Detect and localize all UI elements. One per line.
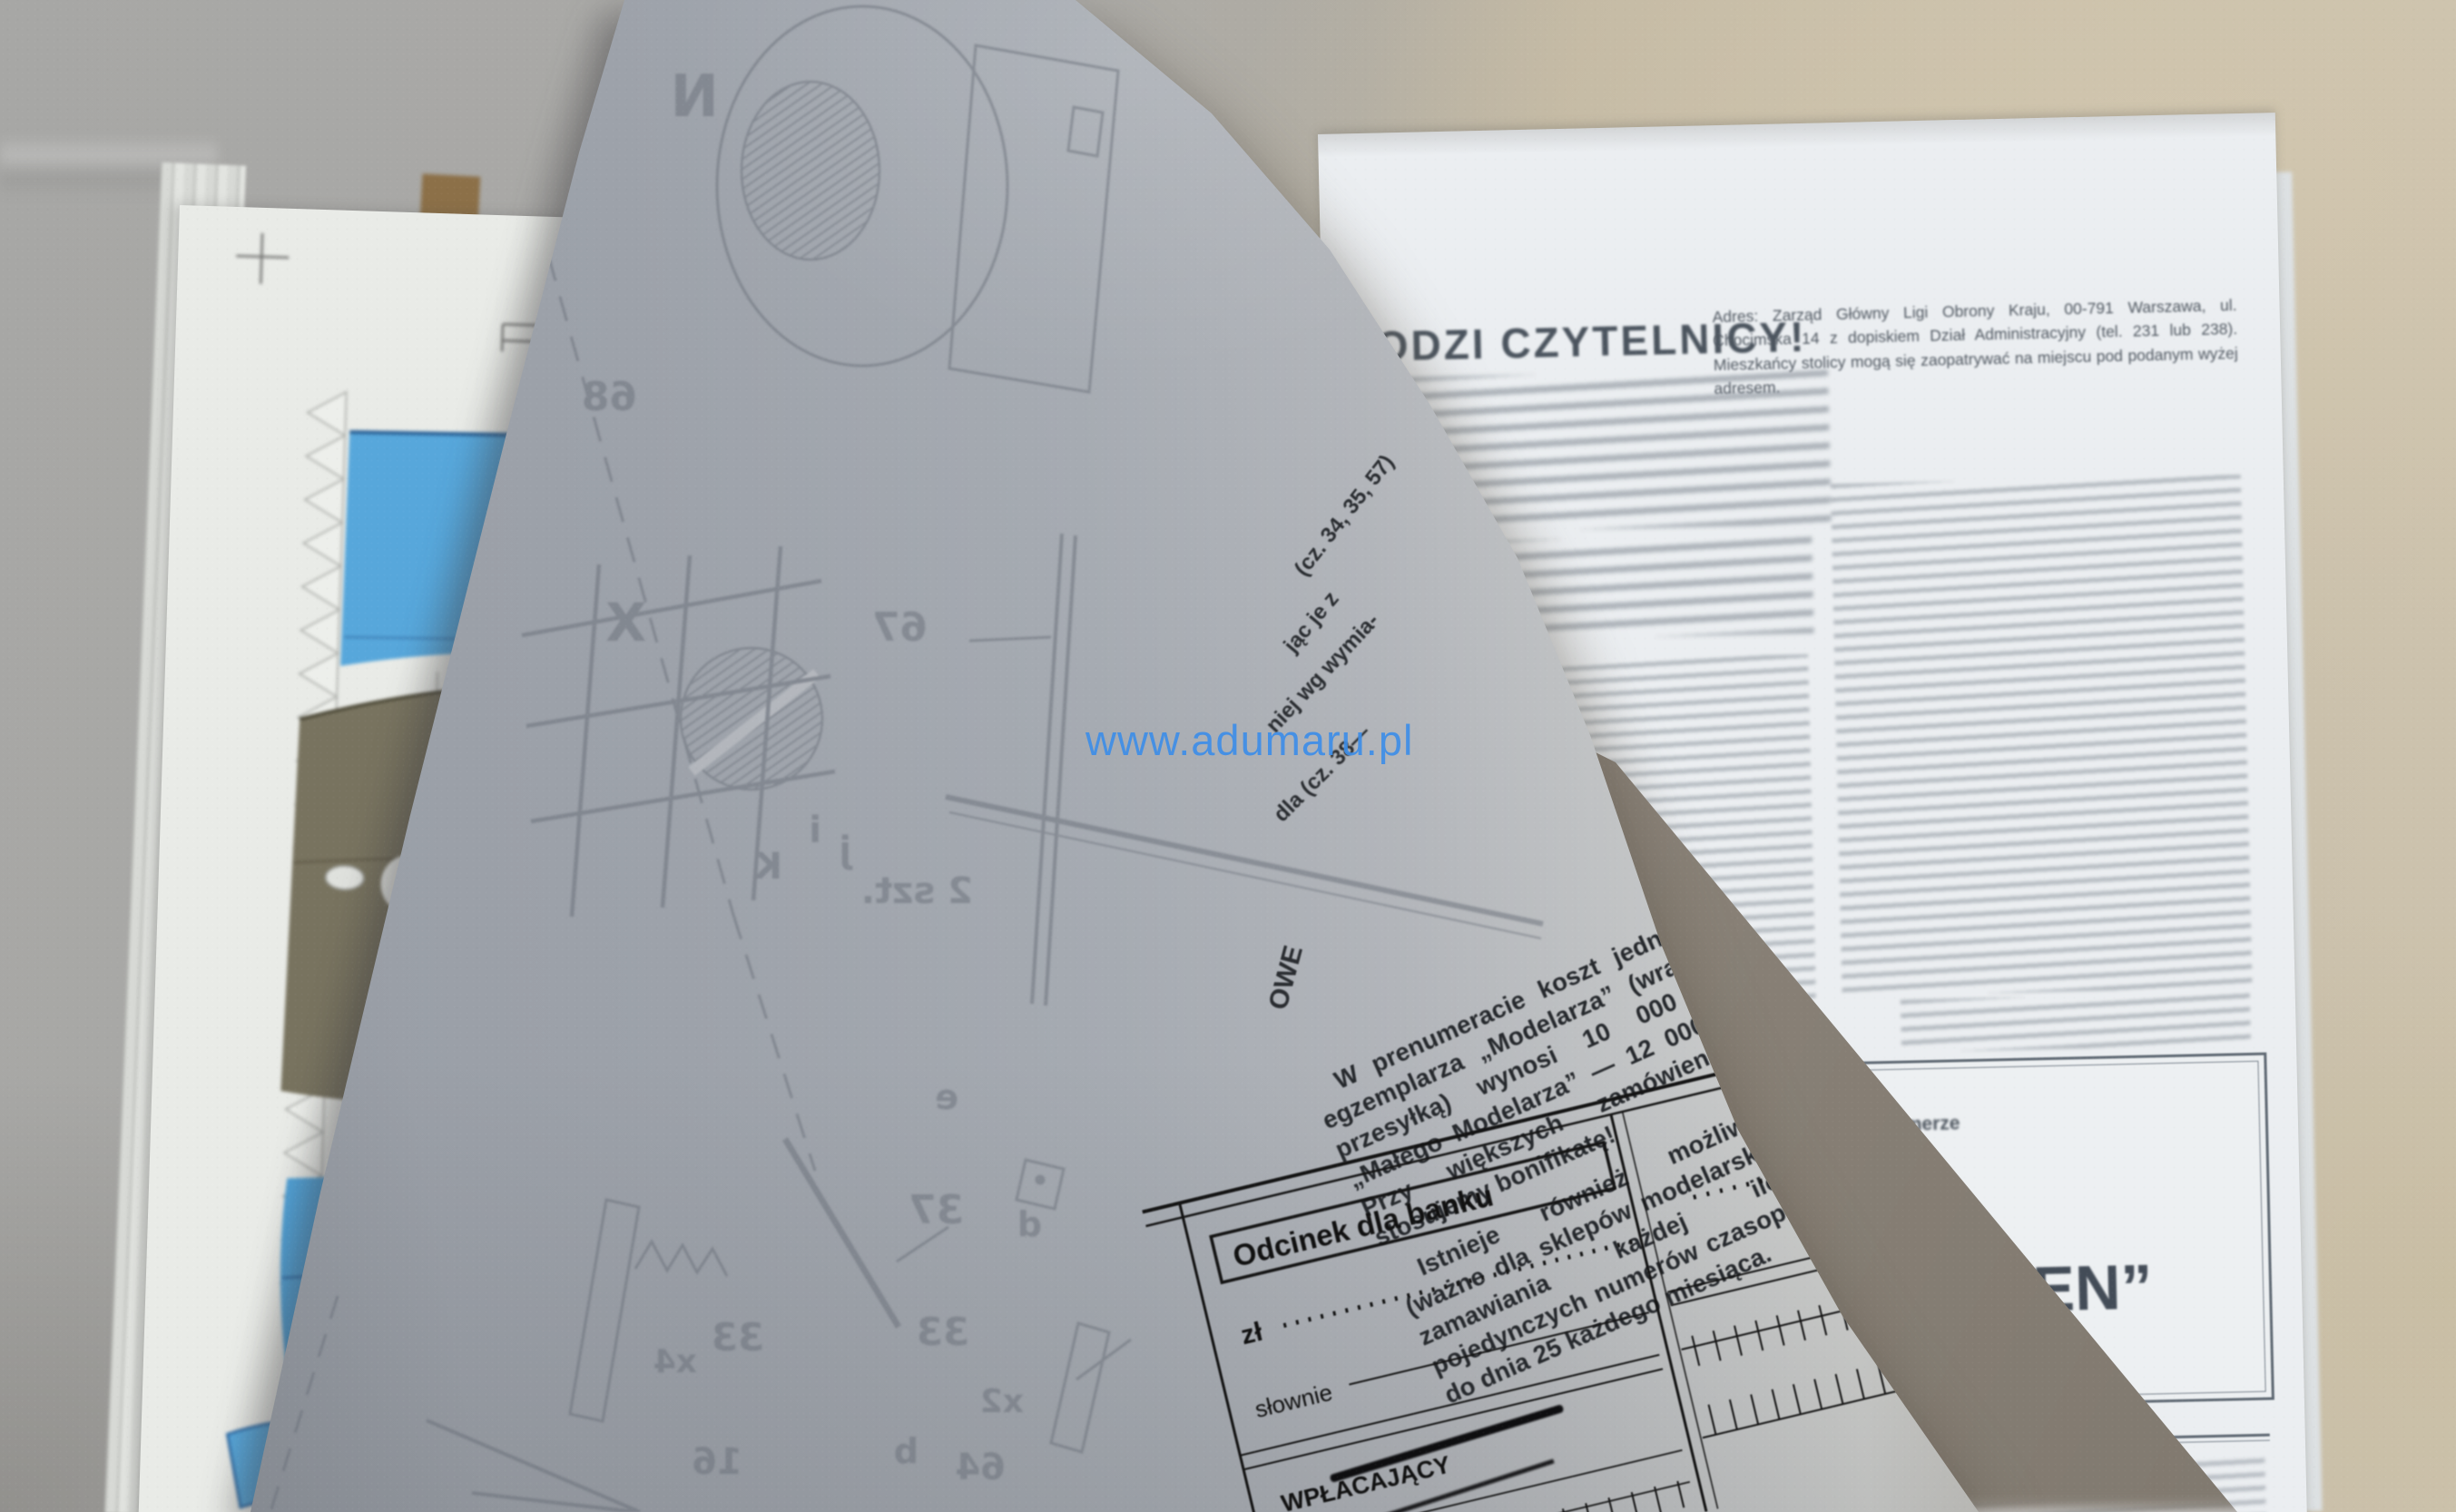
strut-37	[785, 1139, 899, 1327]
part-label-j: j	[839, 830, 853, 871]
part-label-33b: 33	[917, 1310, 969, 1354]
part-label-X: X	[605, 592, 646, 653]
part-label-16: 16	[692, 1441, 742, 1483]
part-label-d: d	[1017, 1204, 1042, 1244]
zigzag-part-2	[1051, 1323, 1131, 1452]
rect-part-outline	[949, 45, 1118, 392]
part-label-e: e	[935, 1077, 958, 1117]
form-center-divider-2	[1623, 1112, 1718, 1509]
part-label-67: 67	[872, 604, 928, 651]
long-strip	[946, 797, 1543, 924]
amount-dotted-line-2	[1694, 1130, 1974, 1197]
part-label-37: 37	[909, 1187, 964, 1233]
part-label-N: N	[670, 64, 719, 131]
part-label-2szt: 2 szt.	[861, 870, 973, 912]
words-label: słownie	[1253, 1379, 1335, 1423]
part-label-K: K	[752, 846, 782, 888]
payer-label: WPŁACAJĄCY	[1279, 1450, 1453, 1512]
form-right-border	[1966, 1057, 2055, 1428]
part-label-i: i	[809, 810, 821, 851]
part-label-64: 64	[955, 1447, 1006, 1488]
right-section-lines	[1667, 1213, 2012, 1350]
part-label-x2: x2	[980, 1383, 1024, 1420]
photo-scene: MŁODZI CZYTELNICY! Adres: Zarząd Główny …	[0, 0, 2456, 1512]
fold-dashed-line-2	[270, 1296, 338, 1512]
zigzag-part-1	[570, 1200, 727, 1421]
misc-lines	[427, 1420, 640, 1512]
fitting-dot	[1036, 1176, 1044, 1183]
part-label-68: 68	[582, 374, 637, 420]
part-label-b: b	[894, 1431, 919, 1471]
notch-outline	[1068, 107, 1103, 156]
tick-comb-row-2	[1709, 1329, 2034, 1435]
form-center-divider	[1611, 1114, 1706, 1512]
leader-67	[969, 637, 1051, 641]
amount-label: zł	[1238, 1317, 1266, 1351]
part-label-x4: x4	[653, 1343, 697, 1380]
watermark-url: www.adumaru.pl	[1086, 715, 1413, 765]
strut-67	[1032, 534, 1076, 1006]
part-label-33a: 33	[712, 1315, 764, 1360]
hatched-ellipse	[742, 82, 879, 260]
